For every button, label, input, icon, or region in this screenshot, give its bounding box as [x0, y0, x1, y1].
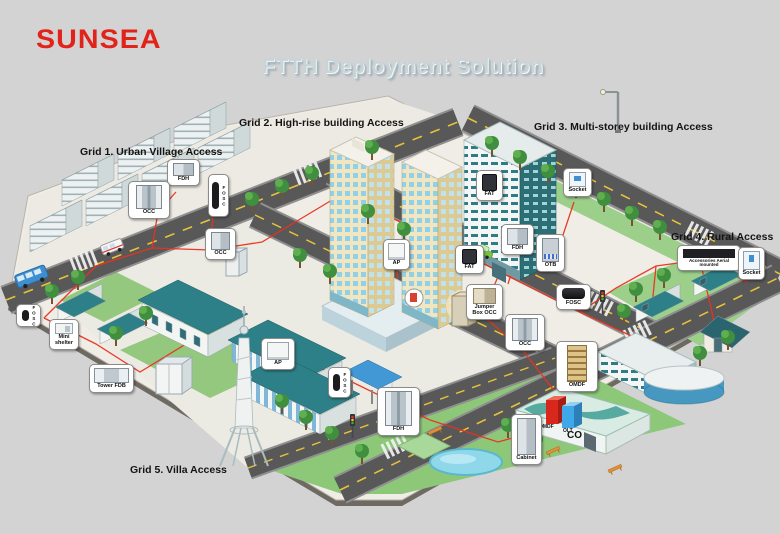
- callout-label: FOSC: [342, 372, 347, 394]
- callout-label: OCC: [214, 251, 226, 257]
- occ-cabinet-icon: [136, 185, 162, 209]
- callout-label: OTB: [545, 263, 557, 269]
- ap-panel-icon: [267, 342, 288, 360]
- fosc-closure-icon: [562, 288, 586, 299]
- mini-shelter-structure: [156, 357, 192, 394]
- street-cabinet-icon: [517, 418, 536, 455]
- callout-ap-high-rise: AP: [383, 239, 410, 270]
- callout-label: FAT: [485, 192, 495, 198]
- fdh-cabinet-icon: [385, 391, 412, 426]
- diagram-title: FTTH Deployment Solution: [262, 55, 543, 79]
- grid5-villa-label: Grid 5. Villa Access: [130, 464, 227, 476]
- callout-label: FOSC: [221, 185, 226, 207]
- callout-label: FAT: [465, 265, 475, 271]
- fat-terminal-icon: [482, 174, 497, 191]
- callout-label: Cabinet: [516, 456, 536, 462]
- socket-icon: [743, 251, 759, 270]
- callout-otb-multi-storey: OTB: [536, 234, 565, 272]
- mini-shelter-icon: [55, 323, 73, 334]
- ap-panel-icon: [388, 243, 404, 260]
- callout-label: OMDF: [569, 383, 585, 389]
- fdh-cabinet-icon: [507, 228, 527, 245]
- occ-cabinet-icon: [512, 318, 537, 341]
- callout-accessories-aerial-mounted: Accessories Aerial mounted: [677, 245, 741, 271]
- grid4-rural-label: Grid 4. Rural Access: [671, 231, 773, 243]
- callout-occ-road: OCC: [505, 314, 545, 351]
- callout-fdh-villa: FDH: [377, 387, 420, 436]
- grid1-urban-village-label: Grid 1. Urban Village Access: [80, 146, 222, 158]
- callout-label: FDH: [512, 246, 523, 252]
- callout-occ-urban-village-upper: OCC: [128, 181, 170, 219]
- callout-fosc-villa: FOSC: [328, 367, 351, 398]
- callout-cabinet-central-office: Cabinet: [511, 414, 542, 465]
- central-office-label: CO: [567, 430, 582, 441]
- callout-label: OCC: [143, 210, 155, 216]
- sunsea-logo: SUNSEA: [36, 24, 162, 55]
- bench: [608, 464, 623, 475]
- callout-mini-shelter: Mini shelter: [49, 319, 79, 350]
- callout-label: AP: [274, 361, 282, 367]
- jumper-box-occ-icon: [473, 288, 496, 304]
- ftth-deployment-diagram: SUNSEA FTTH Deployment Solution Grid 1. …: [0, 0, 780, 534]
- callout-socket-multi-storey: Socket: [563, 168, 592, 197]
- fosc-closure-icon: [333, 374, 340, 392]
- callout-label: FOSC: [566, 301, 581, 307]
- callout-fdh-urban-village: FDH: [167, 159, 200, 186]
- tower-fdb-icon: [94, 368, 130, 383]
- callout-fosc-urban-village: FOSC: [208, 174, 229, 217]
- callout-label: AP: [393, 261, 401, 267]
- grid2-high-rise-label: Grid 2. High-rise building Access: [239, 117, 404, 129]
- fat-terminal-icon: [462, 249, 478, 264]
- callout-fat-multi-storey: FAT: [476, 170, 503, 201]
- socket-icon: [569, 172, 587, 187]
- callout-tower-fdb: Tower FDB: [89, 364, 134, 393]
- callout-omdf-central-office: OMDF: [556, 341, 598, 392]
- callout-fosc-left: FOSC: [16, 304, 41, 327]
- callout-label: Tower FDB: [97, 384, 126, 390]
- occ-cabinet-icon: [211, 232, 230, 250]
- callout-fdh-multi-storey: FDH: [501, 224, 534, 255]
- callout-label: FOSC: [31, 305, 36, 327]
- otb-icon: [542, 238, 560, 262]
- fosc-closure-icon: [22, 310, 29, 322]
- fosc-closure-icon: [212, 182, 219, 209]
- callout-fosc-road: FOSC: [556, 284, 591, 310]
- grid3-multi-storey-label: Grid 3. Multi-storey building Access: [534, 121, 713, 133]
- callout-label: OCC: [519, 342, 531, 348]
- callout-label: Socket: [742, 271, 760, 277]
- callout-occ-urban-village-lower: OCC: [205, 228, 236, 260]
- callout-label: FDH: [178, 177, 189, 183]
- socket-mini-callout: [410, 293, 417, 302]
- callout-fat-high-rise: FAT: [455, 245, 484, 274]
- callout-label: Accessories Aerial mounted: [680, 259, 738, 268]
- olt-box: [562, 402, 582, 428]
- callout-socket-rural: Socket: [738, 247, 765, 280]
- aerial-accessories-icon: [683, 249, 734, 258]
- callout-ap-villa: AP: [261, 338, 295, 370]
- callout-jumper-box-occ: Jumper Box OCC: [466, 284, 503, 320]
- callout-label: Mini shelter: [52, 335, 76, 347]
- callout-label: Jumper Box OCC: [469, 305, 500, 317]
- fdh-cabinet-icon: [173, 163, 193, 176]
- callout-label: FDH: [393, 427, 404, 433]
- callout-label: Socket: [568, 188, 586, 194]
- omdf-rack-icon: [567, 345, 588, 382]
